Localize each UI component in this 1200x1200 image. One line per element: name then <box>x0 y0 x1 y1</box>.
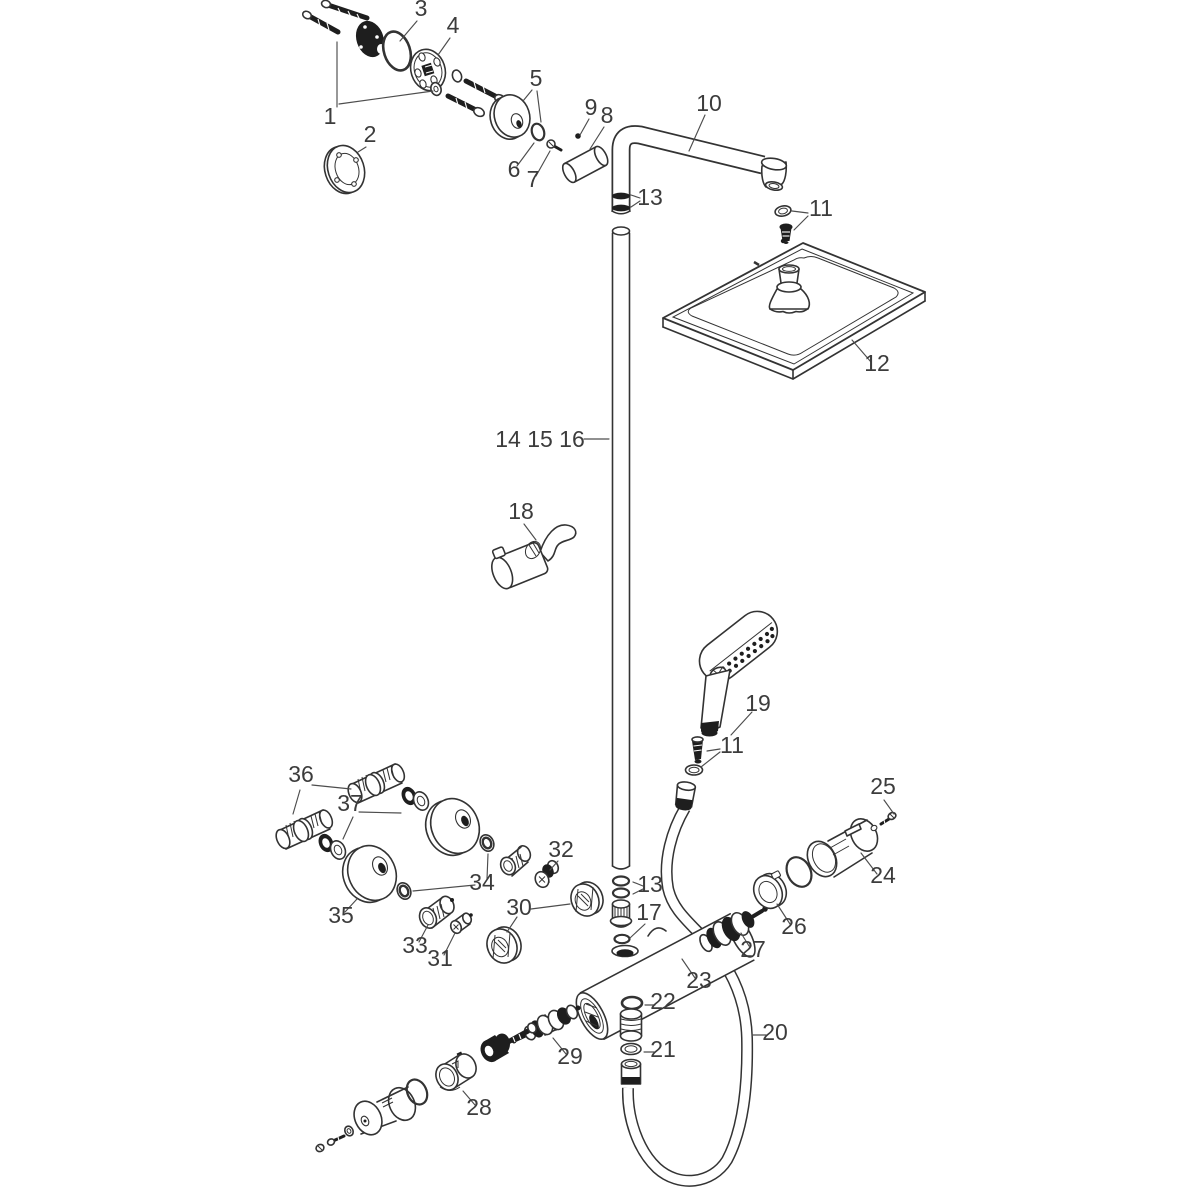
disc-washer <box>451 69 463 83</box>
part-label-5: 5 <box>530 65 543 91</box>
gasket-pair-37-lower <box>316 831 349 861</box>
shower-arm <box>560 133 787 214</box>
part-label-31: 31 <box>427 945 453 971</box>
part-label-13-top: 13 <box>637 184 663 210</box>
hose-upper-fitting <box>674 781 696 812</box>
o-ring-13a <box>613 877 629 886</box>
wall-bracket-group <box>301 0 561 198</box>
part-label-22: 22 <box>650 988 676 1014</box>
part-label-13-low: 13 <box>637 871 663 897</box>
part-label-8: 8 <box>601 102 614 128</box>
handle-screw-set-25 <box>870 811 897 831</box>
part-label-10: 10 <box>696 90 722 116</box>
part-label-19: 19 <box>745 690 771 716</box>
part-label-32: 32 <box>548 836 574 862</box>
part-label-7: 7 <box>527 166 540 192</box>
part-label-11-mid: 11 <box>720 732 744 758</box>
washer-34-upper <box>478 833 497 854</box>
o-ring-13b <box>613 889 629 898</box>
union-nut-30-lower <box>482 922 527 968</box>
part-label-4: 4 <box>447 12 460 38</box>
part-label-26: 26 <box>781 913 807 939</box>
part-label-6: 6 <box>508 156 521 182</box>
part-label-27: 27 <box>740 936 766 962</box>
part-label-35: 35 <box>328 902 354 928</box>
valve-cartridge-29 <box>512 1004 581 1044</box>
knurled-check-valve <box>498 844 533 877</box>
arm-nozzle <box>761 156 788 191</box>
part-label-18: 18 <box>508 498 534 524</box>
valve-insert-31 <box>449 912 473 935</box>
part-label-36: 36 <box>288 761 314 787</box>
part-label-28: 28 <box>466 1094 492 1120</box>
part-label-29: 29 <box>557 1043 583 1069</box>
knurled-adapter <box>611 900 632 927</box>
hose-lower-fitting <box>622 1060 641 1085</box>
part-label-37: 37 <box>337 790 363 816</box>
part-label-12: 12 <box>864 350 890 376</box>
part-label-30: 30 <box>506 894 532 920</box>
o-ring-17 <box>615 935 630 943</box>
part-label-34: 34 <box>469 869 495 895</box>
handle-sleeve-bottom <box>315 1076 431 1153</box>
part-label-17: 17 <box>636 899 662 925</box>
riser-connector-stack <box>611 877 639 957</box>
part-label-11-top: 11 <box>809 195 833 221</box>
gasket-pair-37-upper <box>399 784 432 812</box>
part-label-20: 20 <box>762 1019 788 1045</box>
o-ring-6 <box>530 122 547 142</box>
mounting-screws-1 <box>301 0 367 32</box>
outlet-nipple <box>621 1009 642 1041</box>
handshower-washer-11 <box>686 765 703 775</box>
wall-sleeve-8 <box>560 144 610 184</box>
part-label-2: 2 <box>364 121 377 147</box>
washer-34-lower <box>395 881 414 902</box>
adapter-28 <box>432 1051 480 1094</box>
part-label-21: 21 <box>650 1036 676 1062</box>
shower-holder-18 <box>485 525 576 592</box>
part-label-33: 33 <box>402 932 428 958</box>
part-label-9: 9 <box>585 94 598 120</box>
screw-7 <box>547 140 561 150</box>
cover-plate-3 <box>351 17 415 74</box>
riser-pipe <box>613 227 630 869</box>
part-label-14-15-16: 14 15 16 <box>495 426 585 452</box>
head-washer-11 <box>774 204 792 217</box>
handshower-filter-11 <box>686 737 704 775</box>
shower-system-diagram: 1 2 3 4 5 6 7 8 9 10 11 12 13 14 15 16 1… <box>0 0 1200 1200</box>
part-label-23: 23 <box>686 967 712 993</box>
adapter-ring-26 <box>748 869 791 914</box>
union-nut-30-upper <box>566 877 608 920</box>
part-label-1: 1 <box>324 103 337 129</box>
leader-lines <box>293 21 894 1105</box>
part-label-25: 25 <box>870 773 896 799</box>
escutcheon-5 <box>485 90 536 144</box>
exploded-parts-diagram: 1 2 3 4 5 6 7 8 9 10 11 12 13 14 15 16 1… <box>0 0 1200 1200</box>
part-label-3: 3 <box>415 0 428 21</box>
washer-21 <box>621 1044 641 1055</box>
part-label-24: 24 <box>870 862 896 888</box>
dark-knob <box>477 1022 538 1065</box>
